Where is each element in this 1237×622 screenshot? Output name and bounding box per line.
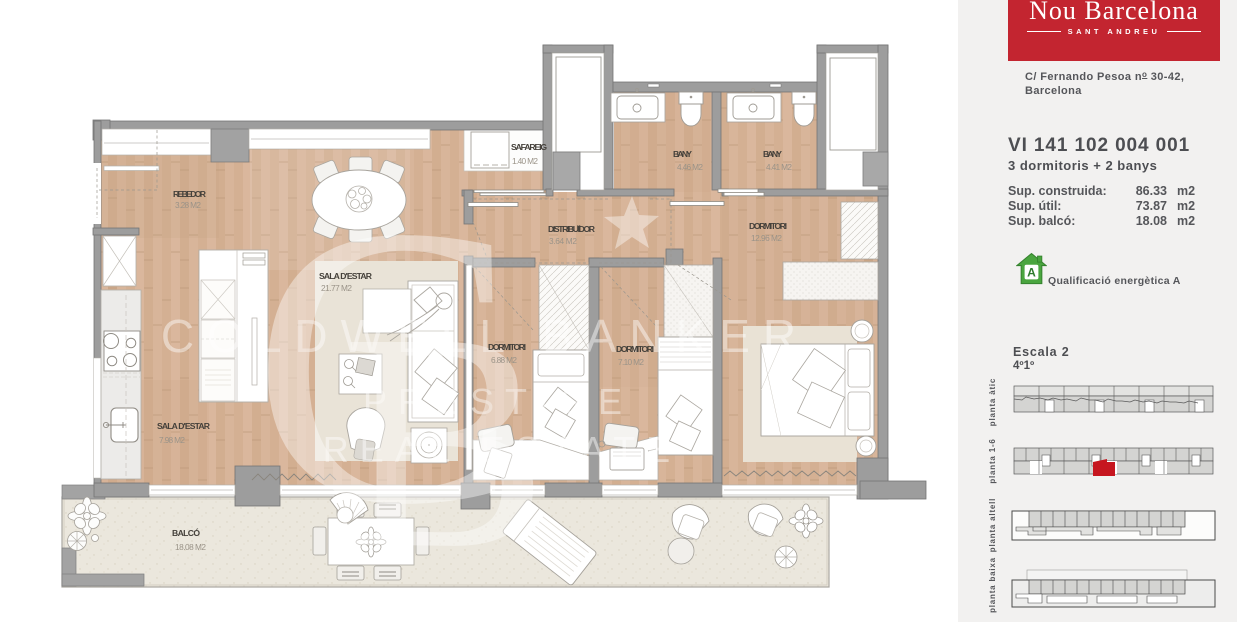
svg-text:21.77 M2: 21.77 M2 bbox=[321, 283, 352, 293]
svg-text:12.96 M2: 12.96 M2 bbox=[751, 233, 782, 243]
svg-text:BANY: BANY bbox=[673, 149, 692, 159]
svg-text:DORMITORI: DORMITORI bbox=[488, 342, 526, 352]
svg-text:DISTRIBUÏDOR: DISTRIBUÏDOR bbox=[548, 224, 596, 234]
svg-text:18.08 M2: 18.08 M2 bbox=[175, 542, 206, 552]
svg-text:PRESTIGE: PRESTIGE bbox=[363, 381, 633, 422]
svg-text:A: A bbox=[1027, 266, 1036, 280]
svg-text:DORMITORI: DORMITORI bbox=[616, 344, 654, 354]
svg-text:SAFAREIG: SAFAREIG bbox=[511, 142, 547, 152]
svg-text:1.40 M2: 1.40 M2 bbox=[512, 156, 538, 166]
svg-text:SALA D'ESTAR: SALA D'ESTAR bbox=[157, 421, 211, 431]
svg-text:4.41 M2: 4.41 M2 bbox=[766, 162, 792, 172]
svg-text:4.46 M2: 4.46 M2 bbox=[677, 162, 703, 172]
svg-text:REBEDOR: REBEDOR bbox=[173, 189, 207, 199]
svg-text:planta baixa: planta baixa bbox=[988, 557, 997, 613]
svg-text:COLDWELL BANKER: COLDWELL BANKER bbox=[161, 310, 809, 362]
svg-text:3.64 M2: 3.64 M2 bbox=[549, 236, 577, 246]
svg-text:3.28 M2: 3.28 M2 bbox=[175, 200, 201, 210]
svg-text:planta àtic: planta àtic bbox=[988, 378, 997, 426]
svg-text:REAL ESTATE: REAL ESTATE bbox=[323, 429, 681, 470]
svg-text:BANY: BANY bbox=[763, 149, 782, 159]
svg-text:SALA D'ESTAR: SALA D'ESTAR bbox=[319, 271, 373, 281]
svg-text:7.10 M2: 7.10 M2 bbox=[618, 357, 644, 367]
svg-text:7.98 M2: 7.98 M2 bbox=[159, 435, 185, 445]
svg-text:planta altell: planta altell bbox=[988, 498, 997, 552]
svg-text:planta 1-6: planta 1-6 bbox=[988, 438, 997, 483]
svg-text:6.88 M2: 6.88 M2 bbox=[491, 355, 517, 365]
svg-text:DORMITORI: DORMITORI bbox=[749, 221, 787, 231]
svg-text:BALCÓ: BALCÓ bbox=[172, 527, 200, 538]
